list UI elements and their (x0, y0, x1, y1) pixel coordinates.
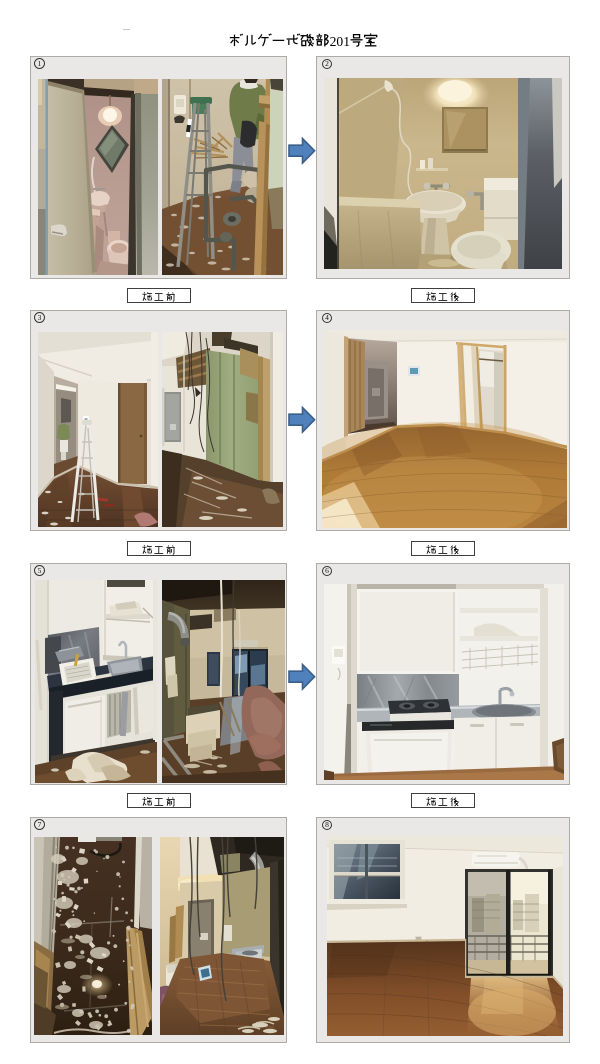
svg-text:201: 201 (330, 34, 350, 49)
